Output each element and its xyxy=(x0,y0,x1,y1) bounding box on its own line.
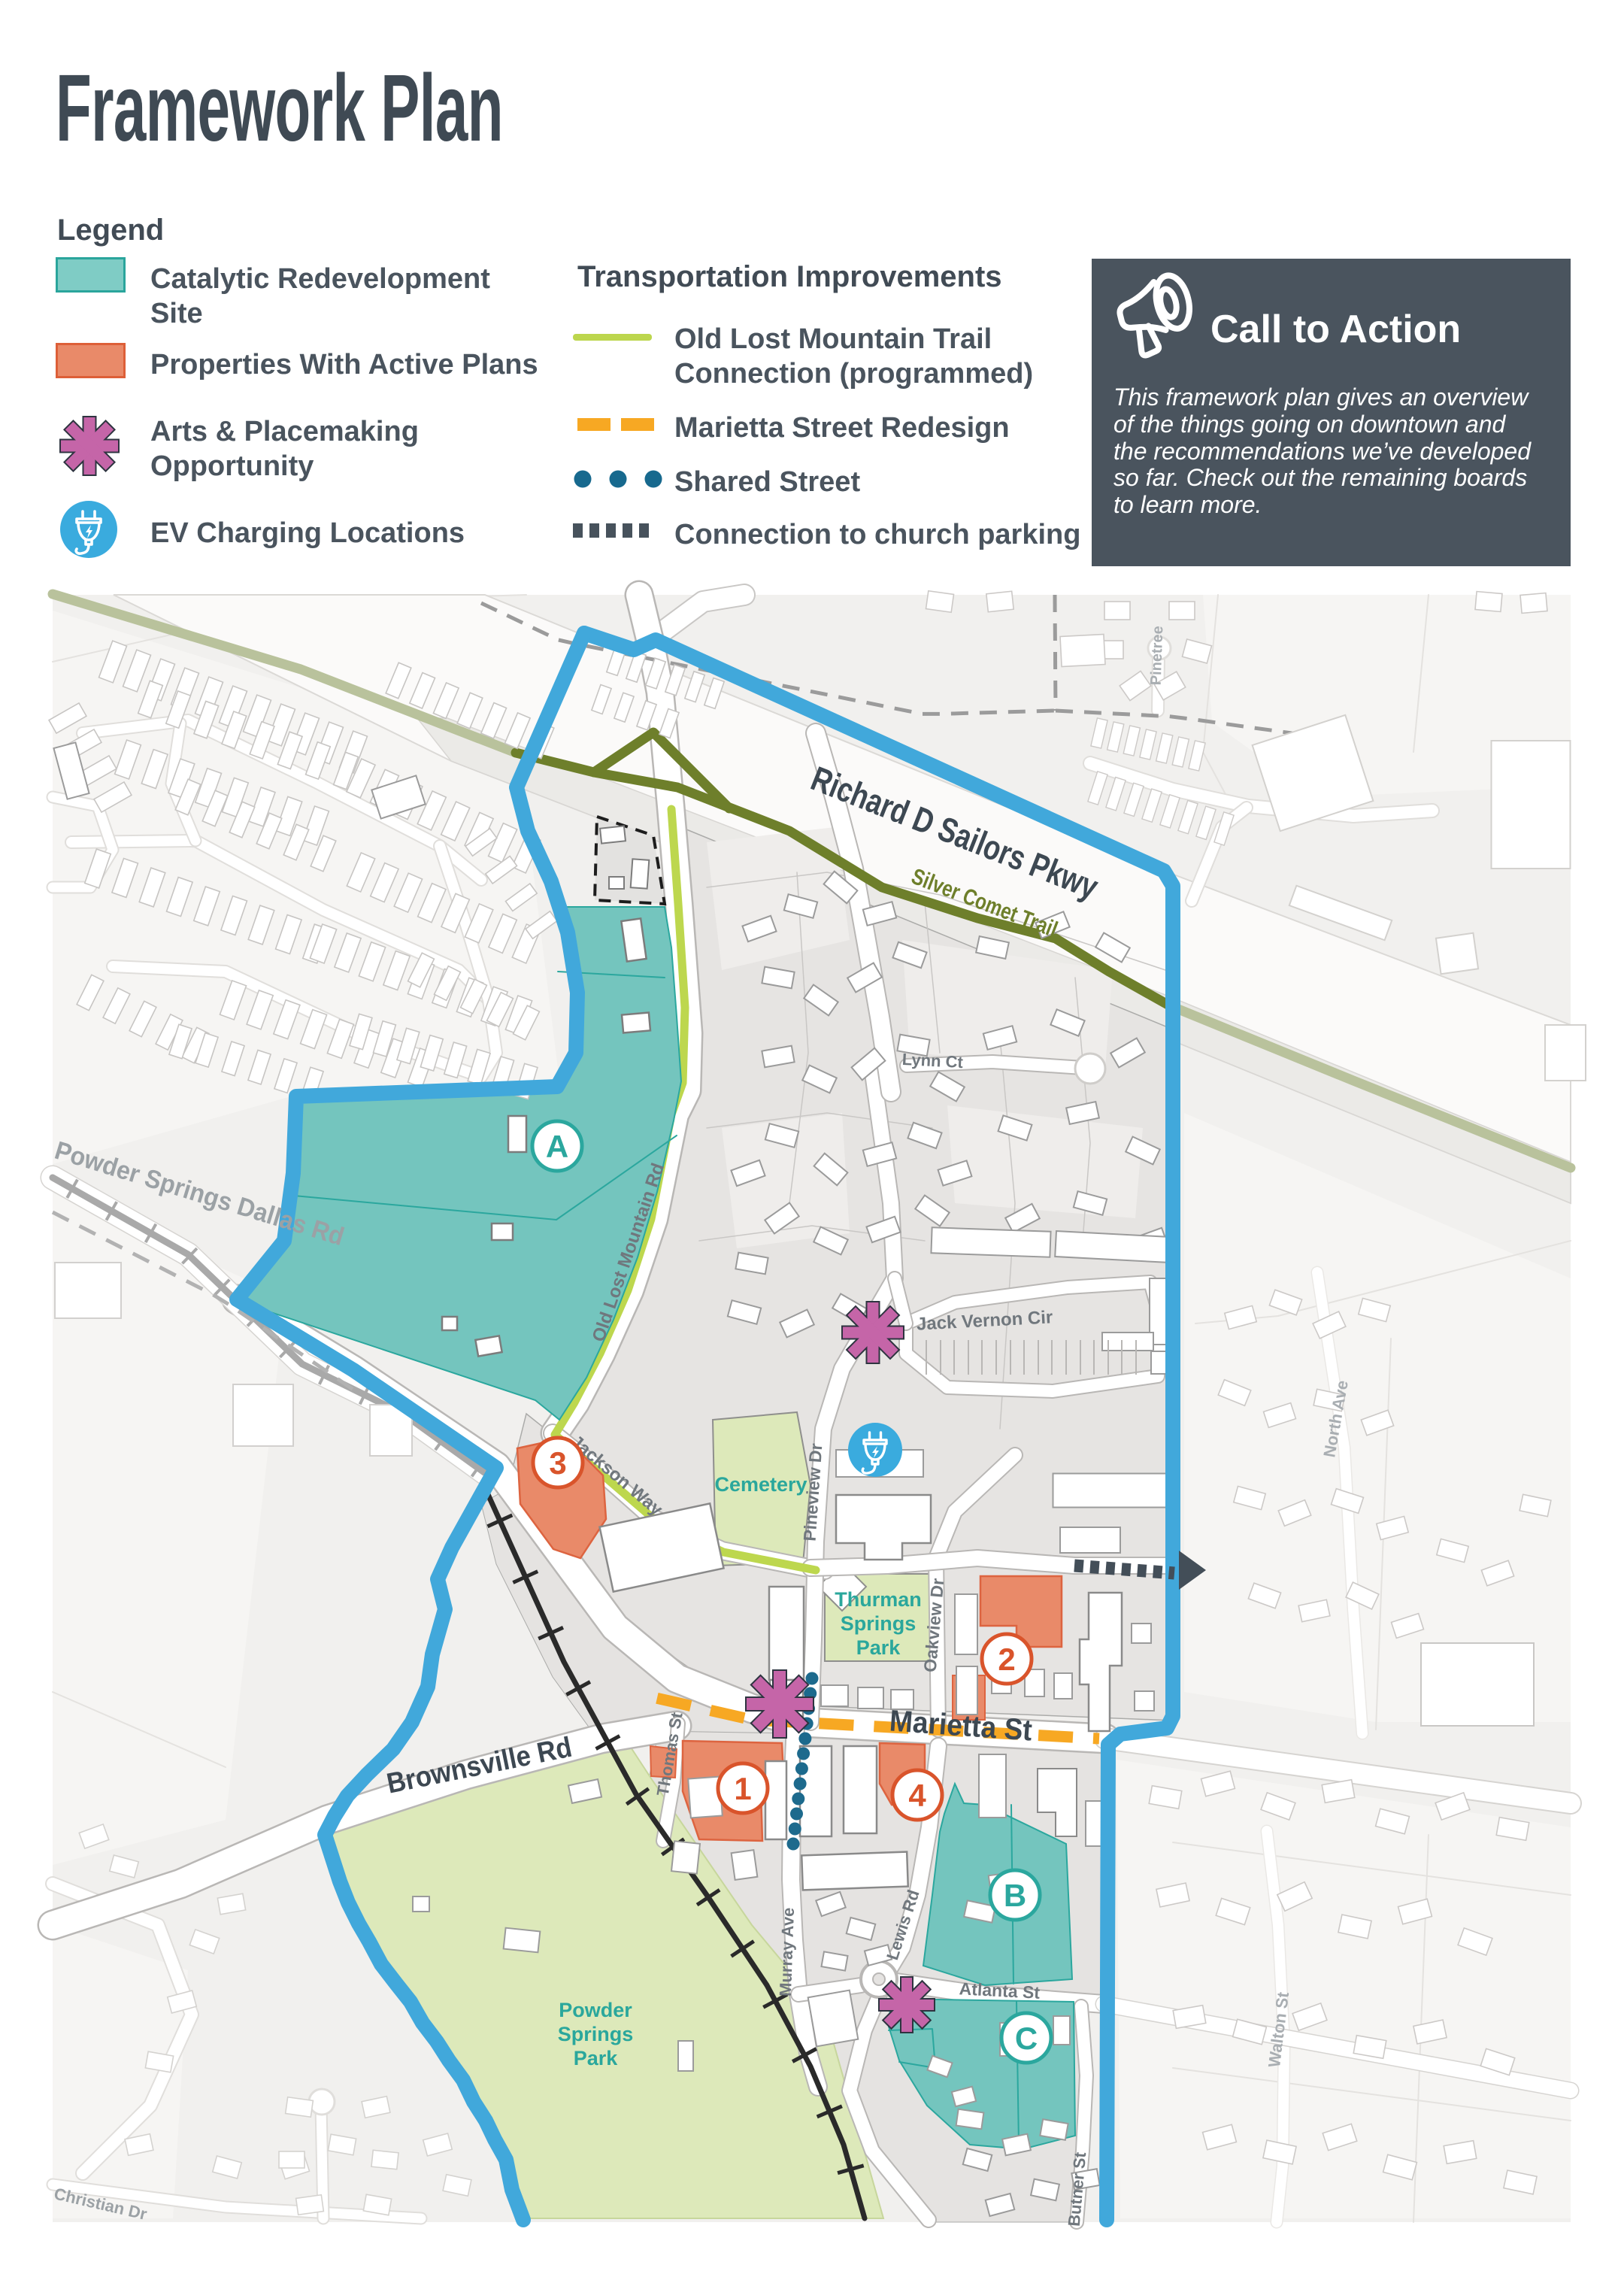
svg-text:Park: Park xyxy=(574,2047,619,2069)
svg-text:Lynn Ct: Lynn Ct xyxy=(901,1050,964,1072)
svg-text:Park: Park xyxy=(856,1636,901,1659)
svg-text:4: 4 xyxy=(908,1778,926,1813)
svg-text:3: 3 xyxy=(549,1445,566,1481)
svg-text:C: C xyxy=(1015,2021,1038,2056)
svg-text:2: 2 xyxy=(998,1642,1015,1677)
svg-text:Cemetery: Cemetery xyxy=(714,1473,807,1496)
svg-text:B: B xyxy=(1004,1878,1026,1913)
svg-text:Powder: Powder xyxy=(559,1999,632,2021)
svg-text:1: 1 xyxy=(734,1771,751,1806)
svg-text:Murray Ave: Murray Ave xyxy=(776,1907,798,1997)
svg-text:Thurman: Thurman xyxy=(835,1588,922,1611)
svg-text:Springs: Springs xyxy=(558,2023,634,2045)
svg-text:A: A xyxy=(546,1129,568,1164)
svg-text:Pinetree: Pinetree xyxy=(1148,626,1167,686)
svg-text:Springs: Springs xyxy=(841,1612,917,1635)
